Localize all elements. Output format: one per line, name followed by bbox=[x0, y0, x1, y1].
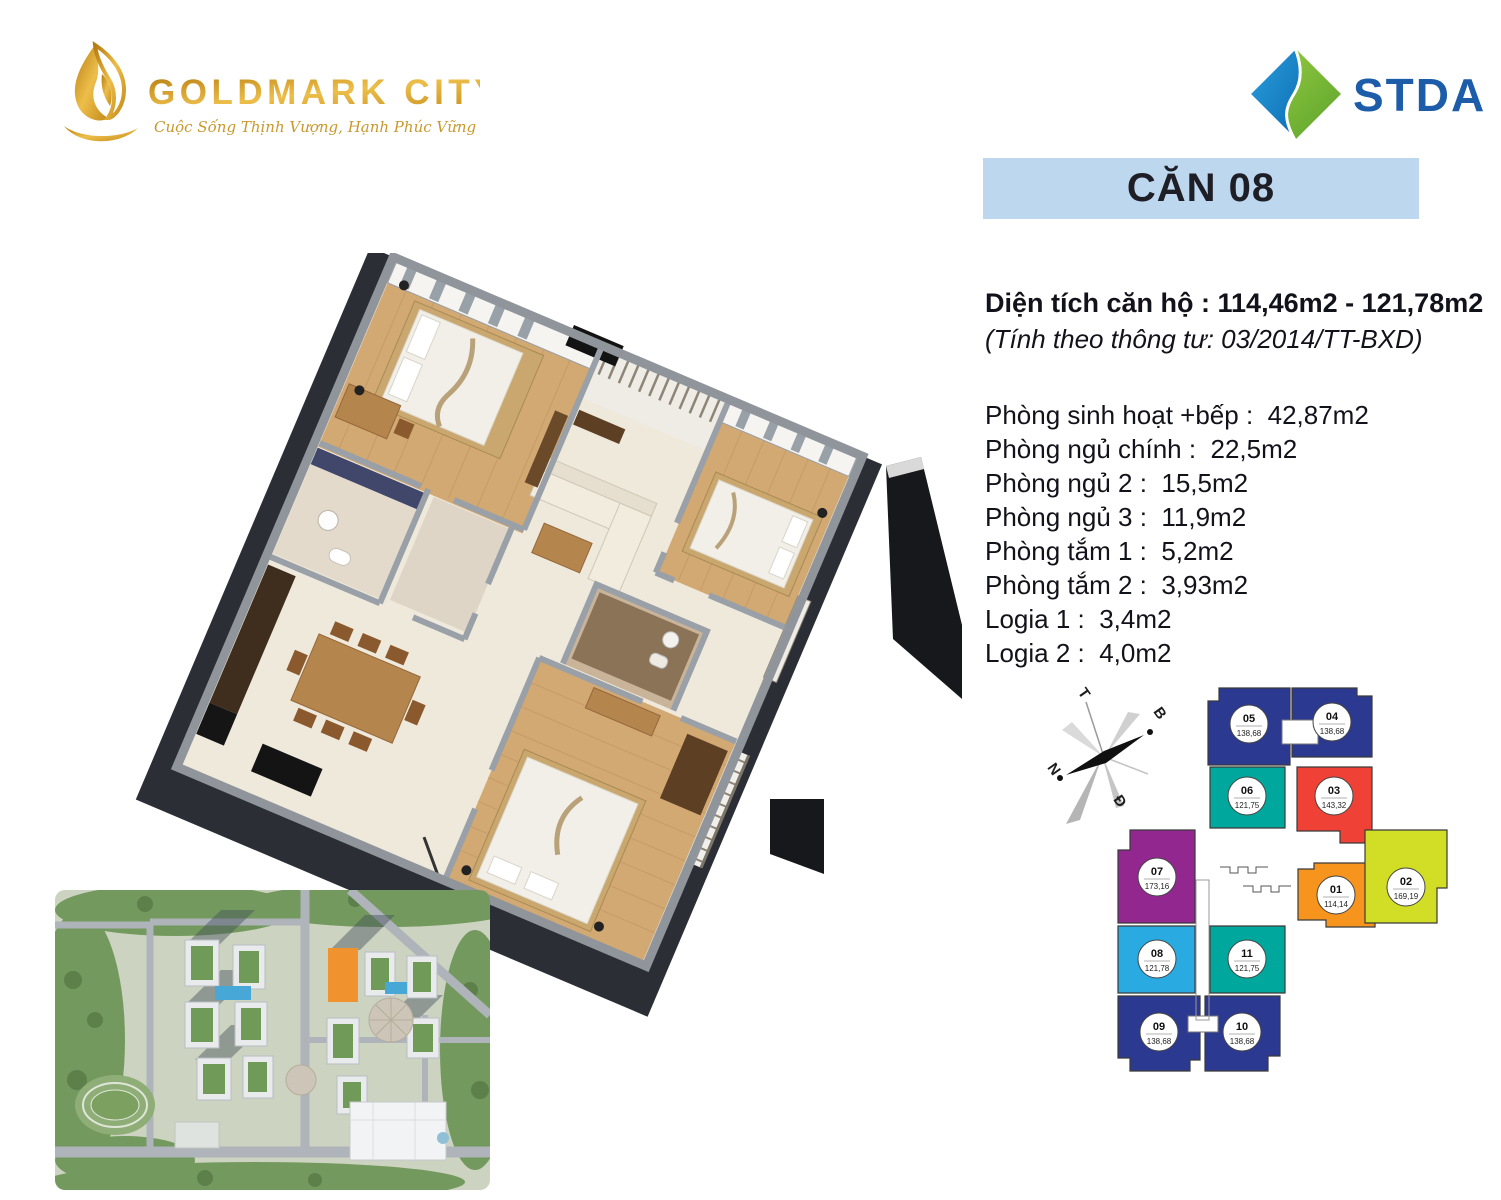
area-summary: Diện tích căn hộ : 114,46m2 - 121,78m2 (… bbox=[985, 286, 1483, 356]
svg-text:121,75: 121,75 bbox=[1235, 964, 1260, 973]
black-block bbox=[770, 799, 824, 874]
area-regulation-note: (Tính theo thông tư: 03/2014/TT-BXD) bbox=[985, 322, 1483, 356]
svg-text:08: 08 bbox=[1151, 948, 1163, 960]
stda-logo: STDA bbox=[1243, 42, 1488, 147]
room-line: Phòng tắm 1 : 5,2m2 bbox=[985, 534, 1369, 568]
svg-text:07: 07 bbox=[1151, 866, 1163, 878]
svg-text:143,32: 143,32 bbox=[1322, 801, 1347, 810]
brand-name: GOLDMARK CITY bbox=[148, 73, 480, 112]
svg-text:05: 05 bbox=[1243, 713, 1255, 725]
brand-tagline: Cuộc Sống Thịnh Vượng, Hạnh Phúc Vững Bề… bbox=[154, 118, 480, 136]
svg-text:173,16: 173,16 bbox=[1145, 882, 1170, 891]
room-line: Logia 1 : 3,4m2 bbox=[985, 602, 1369, 636]
orange-building bbox=[328, 948, 358, 1002]
svg-text:01: 01 bbox=[1330, 884, 1342, 896]
svg-text:03: 03 bbox=[1328, 785, 1340, 797]
area-total: Diện tích căn hộ : 114,46m2 - 121,78m2 bbox=[985, 286, 1483, 322]
unit-banner: CĂN 08 bbox=[983, 158, 1419, 219]
stda-diamond-icon bbox=[1249, 48, 1341, 140]
svg-text:06: 06 bbox=[1241, 785, 1253, 797]
room-line: Logia 2 : 4,0m2 bbox=[985, 636, 1369, 670]
room-list: Phòng sinh hoạt +bếp : 42,87m2Phòng ngủ … bbox=[985, 398, 1369, 670]
svg-text:169,19: 169,19 bbox=[1394, 892, 1419, 901]
floor-plate-keyplan: 05138,68 04138,68 06121,75 03143,32 0717… bbox=[1100, 680, 1460, 1080]
svg-text:138,68: 138,68 bbox=[1237, 729, 1262, 738]
compass-west-label: T bbox=[1074, 685, 1093, 702]
svg-text:121,75: 121,75 bbox=[1235, 801, 1260, 810]
svg-text:10: 10 bbox=[1236, 1021, 1248, 1033]
svg-text:138,68: 138,68 bbox=[1230, 1037, 1255, 1046]
room-line: Phòng sinh hoạt +bếp : 42,87m2 bbox=[985, 398, 1369, 432]
black-wing bbox=[886, 457, 962, 699]
svg-text:11: 11 bbox=[1241, 948, 1253, 960]
room-line: Phòng ngủ 2 : 15,5m2 bbox=[985, 466, 1369, 500]
svg-text:02: 02 bbox=[1400, 876, 1412, 888]
mall-building bbox=[350, 1102, 446, 1160]
room-line: Phòng ngủ chính : 22,5m2 bbox=[985, 432, 1369, 466]
room-line: Phòng tắm 2 : 3,93m2 bbox=[985, 568, 1369, 602]
svg-text:121,78: 121,78 bbox=[1145, 964, 1170, 973]
svg-text:114,14: 114,14 bbox=[1324, 900, 1348, 909]
lotus-icon bbox=[64, 45, 138, 141]
agency-name: STDA bbox=[1353, 69, 1486, 121]
site-map bbox=[55, 890, 490, 1190]
svg-text:138,68: 138,68 bbox=[1147, 1037, 1172, 1046]
svg-text:09: 09 bbox=[1153, 1021, 1165, 1033]
goldmark-logo: GOLDMARK CITY Cuộc Sống Thịnh Vượng, Hạn… bbox=[50, 30, 480, 155]
svg-text:138,68: 138,68 bbox=[1320, 727, 1345, 736]
stadium-track bbox=[75, 1075, 155, 1135]
flyer-page: GOLDMARK CITY Cuộc Sống Thịnh Vượng, Hạn… bbox=[0, 0, 1501, 1200]
room-line: Phòng ngủ 3 : 11,9m2 bbox=[985, 500, 1369, 534]
svg-text:04: 04 bbox=[1326, 711, 1339, 723]
